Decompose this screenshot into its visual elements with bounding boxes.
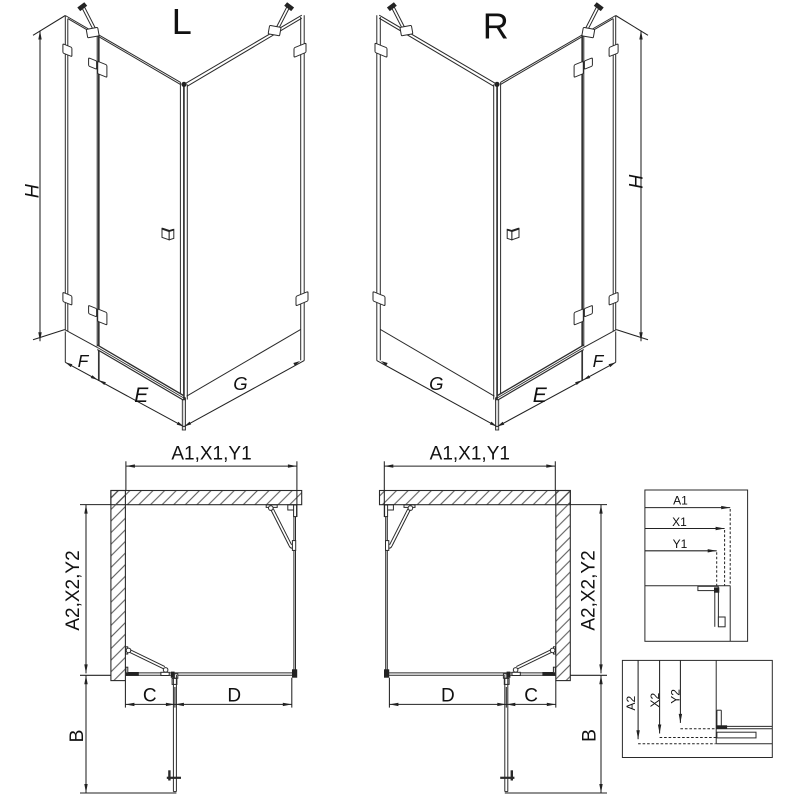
svg-text:A1,X1,Y1: A1,X1,Y1 <box>171 444 251 465</box>
svg-text:Y2: Y2 <box>669 689 683 704</box>
svg-text:X1: X1 <box>672 515 687 529</box>
svg-text:F: F <box>593 351 605 371</box>
svg-text:A2,X2,Y2: A2,X2,Y2 <box>63 550 84 630</box>
svg-text:A2: A2 <box>624 696 638 711</box>
svg-text:H: H <box>22 183 44 198</box>
svg-text:C: C <box>524 686 538 707</box>
svg-text:R: R <box>483 6 509 47</box>
svg-text:C: C <box>143 686 157 707</box>
svg-text:F: F <box>78 351 90 371</box>
svg-text:B: B <box>579 729 601 742</box>
svg-text:D: D <box>227 686 241 707</box>
svg-text:E: E <box>533 384 548 407</box>
svg-text:A2,X2,Y2: A2,X2,Y2 <box>578 550 599 630</box>
svg-text:Y1: Y1 <box>673 537 688 551</box>
svg-text:X2: X2 <box>648 693 662 708</box>
svg-text:A1: A1 <box>673 494 688 508</box>
svg-text:L: L <box>172 1 192 42</box>
svg-text:G: G <box>429 373 443 394</box>
svg-text:G: G <box>233 373 247 394</box>
svg-text:B: B <box>66 729 88 742</box>
svg-text:H: H <box>626 174 648 189</box>
svg-text:A1,X1,Y1: A1,X1,Y1 <box>430 444 510 465</box>
svg-text:E: E <box>134 384 149 407</box>
svg-text:D: D <box>441 686 455 707</box>
